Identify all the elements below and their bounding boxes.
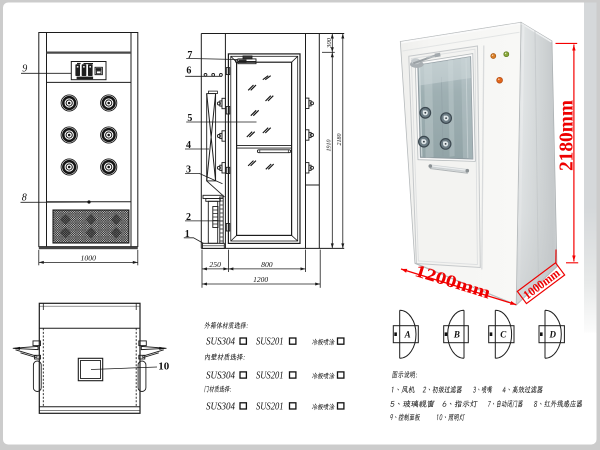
svg-text:SUS304: SUS304 (206, 337, 235, 348)
svg-text:6: 6 (186, 66, 191, 77)
svg-text:4: 4 (186, 140, 191, 151)
svg-text:1: 1 (185, 229, 190, 240)
svg-text:SUS304: SUS304 (206, 401, 235, 412)
svg-text:B: B (453, 330, 460, 340)
svg-text:800: 800 (261, 261, 273, 269)
svg-text:D: D (549, 330, 557, 340)
svg-text:2180: 2180 (336, 133, 343, 146)
svg-text:2: 2 (186, 212, 191, 223)
svg-text:7: 7 (187, 50, 192, 61)
svg-text:SUS201: SUS201 (256, 401, 284, 412)
svg-text:1000: 1000 (81, 254, 97, 262)
svg-text:250: 250 (209, 261, 221, 269)
svg-text:1910: 1910 (326, 139, 333, 152)
svg-text:2180mm: 2180mm (556, 100, 578, 171)
svg-text:3: 3 (186, 165, 191, 176)
svg-text:8: 8 (22, 192, 27, 203)
svg-text:C: C (500, 330, 507, 340)
svg-text:A: A (404, 330, 411, 340)
svg-text:SUS201: SUS201 (256, 370, 284, 381)
svg-text:SUS201: SUS201 (256, 337, 284, 348)
svg-text:300: 300 (326, 37, 333, 49)
svg-text:1200: 1200 (253, 276, 269, 284)
svg-text:SUS304: SUS304 (206, 370, 235, 381)
svg-text:10: 10 (158, 361, 170, 373)
svg-text:5: 5 (187, 113, 192, 124)
